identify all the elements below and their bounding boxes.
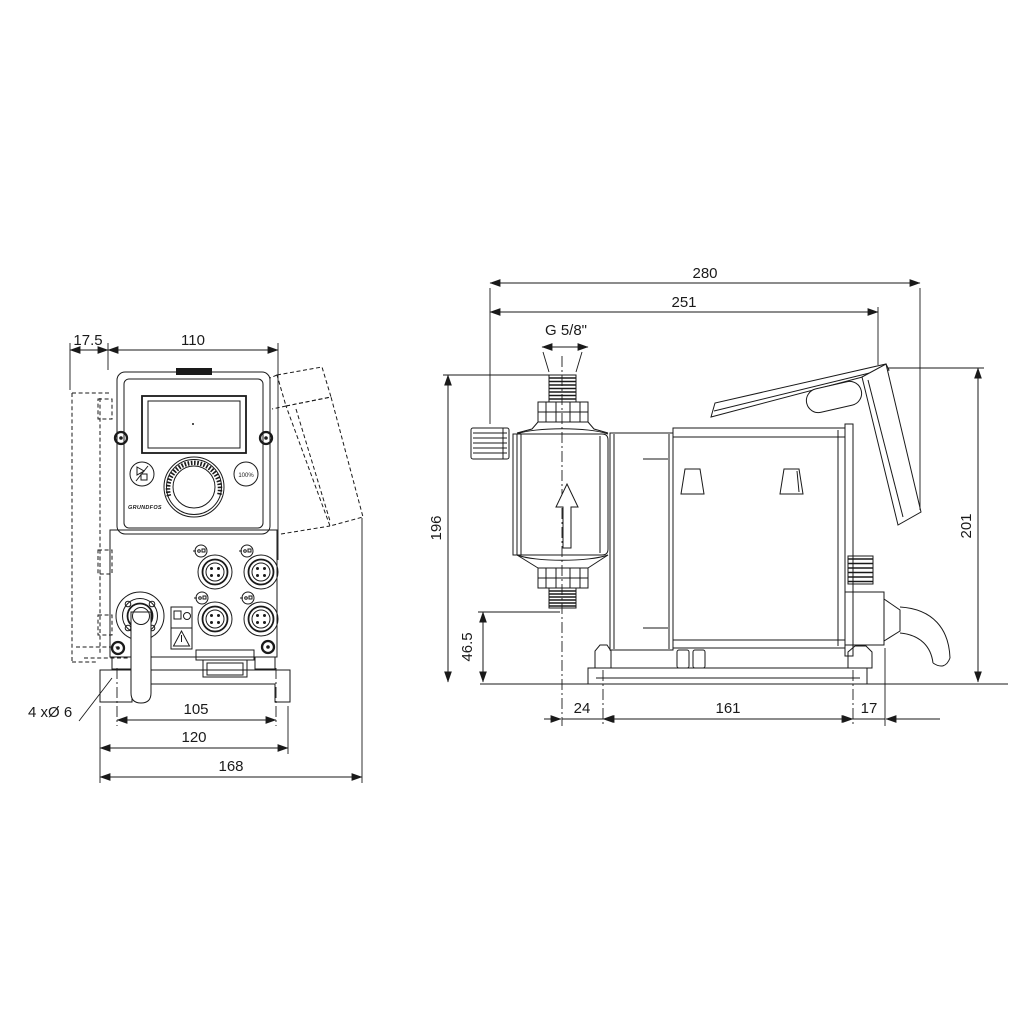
connector-socket xyxy=(198,602,232,636)
start-stop-button xyxy=(130,462,154,486)
mains-cable xyxy=(900,607,950,666)
dim-105: 105 xyxy=(183,701,208,718)
front-view: 100% GRUNDFOS xyxy=(72,367,363,703)
connector-socket xyxy=(244,555,278,589)
mounting-plate xyxy=(100,650,290,702)
pump-head-hidden-outline xyxy=(270,367,363,534)
dim-196: 196 xyxy=(428,515,445,540)
flow-direction-arrow xyxy=(556,484,578,548)
dim-110: 110 xyxy=(181,332,205,349)
vent-valve-knob xyxy=(471,428,509,459)
dim-24: 24 xyxy=(574,700,591,717)
side-view xyxy=(471,356,1008,726)
rear-cable-gland xyxy=(845,556,950,666)
dim-4xd6: 4 xØ 6 xyxy=(28,704,72,721)
tilted-cover xyxy=(711,364,921,525)
connector-socket xyxy=(244,602,278,636)
top-clip xyxy=(176,368,212,375)
cable-strain-relief xyxy=(131,612,151,703)
dim-168: 168 xyxy=(218,758,243,775)
click-wheel-knob xyxy=(164,457,224,517)
signal-connectors xyxy=(193,545,278,636)
control-box xyxy=(673,424,853,656)
discharge-connection xyxy=(517,375,608,433)
hundred-percent-button: 100% xyxy=(234,462,258,486)
hole-note-leader xyxy=(79,678,112,721)
dim-280: 280 xyxy=(692,265,717,282)
brand-logo: GRUNDFOS xyxy=(128,505,162,511)
dim-17: 17 xyxy=(861,700,878,717)
dim-thread: G 5/8" xyxy=(545,322,587,339)
knob-knurl xyxy=(168,463,220,496)
dosing-pump-dimensional-drawing: 100% GRUNDFOS xyxy=(0,0,1024,1024)
dim-17-5: 17.5 xyxy=(73,332,102,349)
start-stop-icon xyxy=(136,466,148,481)
warning-label xyxy=(171,607,192,649)
connector-socket xyxy=(198,555,232,589)
side-base-plate xyxy=(480,645,1008,684)
pump-head xyxy=(471,428,608,568)
technical-drawing-page: 100% GRUNDFOS xyxy=(0,0,1024,1024)
dim-201: 201 xyxy=(958,513,975,538)
dim-46-5: 46.5 xyxy=(459,632,476,661)
suction-connection xyxy=(538,568,588,608)
dimensions: 17.5 110 4 xØ 6 105 120 168 280 251 G 5/… xyxy=(28,265,984,783)
hundred-percent-label: 100% xyxy=(238,473,254,479)
dim-120: 120 xyxy=(181,729,206,746)
drive-housing xyxy=(610,433,673,650)
dim-161: 161 xyxy=(715,700,740,717)
display xyxy=(142,396,246,453)
dim-251: 251 xyxy=(671,294,696,311)
